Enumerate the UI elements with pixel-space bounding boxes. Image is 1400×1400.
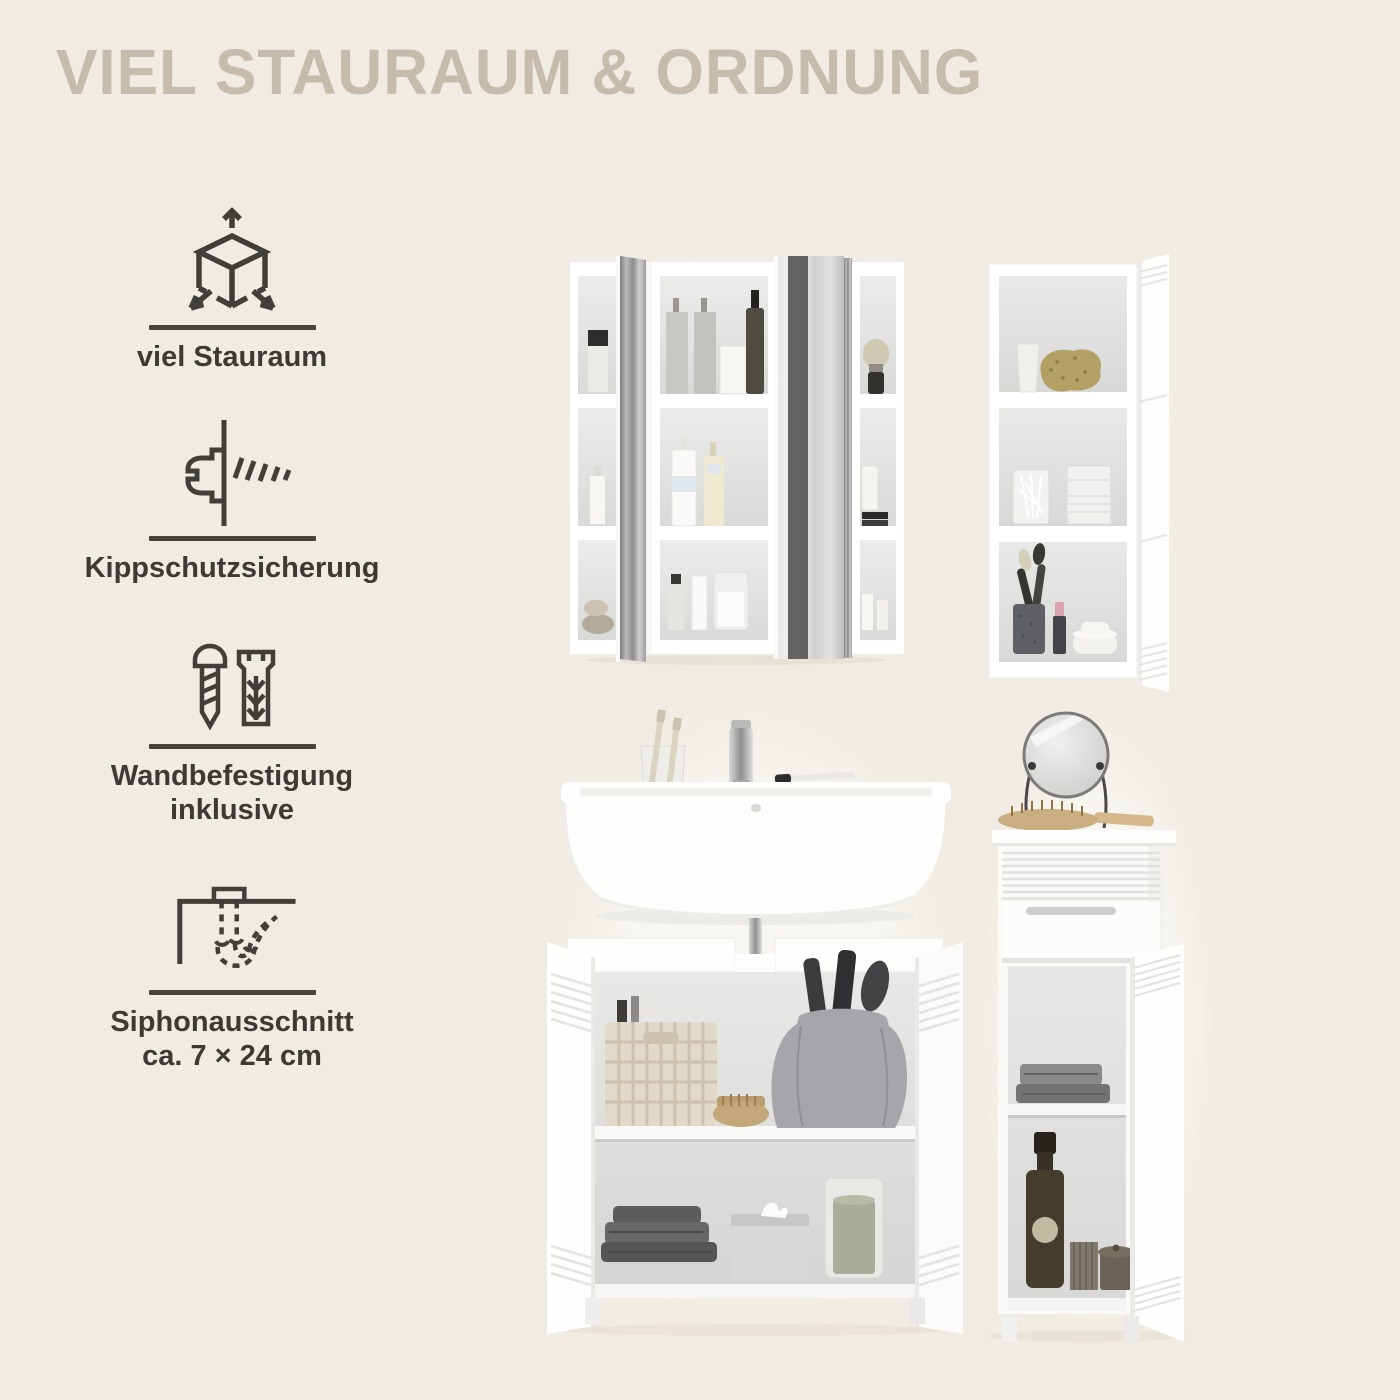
shadow	[565, 1324, 945, 1336]
wall-cabinet-door	[1137, 254, 1169, 692]
compartment-towels	[1016, 1064, 1110, 1103]
washbasin	[561, 782, 951, 925]
feature-wandbefestigung: Wandbefestigung inklusive	[52, 632, 412, 828]
feature-label: Kippschutzsicherung	[52, 552, 412, 586]
cube-dimensions-icon	[52, 203, 412, 321]
feature-label: Siphonausschnitt ca. 7 × 24 cm	[52, 1006, 412, 1074]
divider	[149, 990, 316, 995]
divider	[149, 744, 316, 749]
wall-cabinet-photo	[983, 250, 1183, 695]
floor-cabinet-door	[1130, 944, 1184, 1342]
floor-cabinet-photo	[978, 700, 1218, 1345]
cabinet-feet	[585, 1298, 925, 1324]
siphon-cutout-icon	[52, 868, 412, 986]
feature-viel-stauraum: viel Stauraum	[52, 203, 412, 375]
washbasin-cabinet-photo	[545, 686, 965, 1336]
feature-label: Wandbefestigung inklusive	[52, 760, 412, 828]
page-title: VIEL STAURAUM & ORDNUNG	[56, 40, 983, 104]
toothbrush	[775, 769, 855, 784]
divider	[149, 325, 316, 330]
divider	[149, 536, 316, 541]
anti-tip-lock-icon	[52, 414, 412, 532]
feature-siphonausschnitt: Siphonausschnitt ca. 7 × 24 cm	[52, 868, 412, 1074]
mirror-cabinet-photo	[556, 250, 906, 665]
shadow	[988, 1330, 1188, 1342]
feature-kippschutzsicherung: Kippschutzsicherung	[52, 414, 412, 586]
screw-dowel-icon	[52, 632, 412, 740]
feature-label: viel Stauraum	[52, 341, 412, 375]
hair-brush	[998, 800, 1154, 831]
